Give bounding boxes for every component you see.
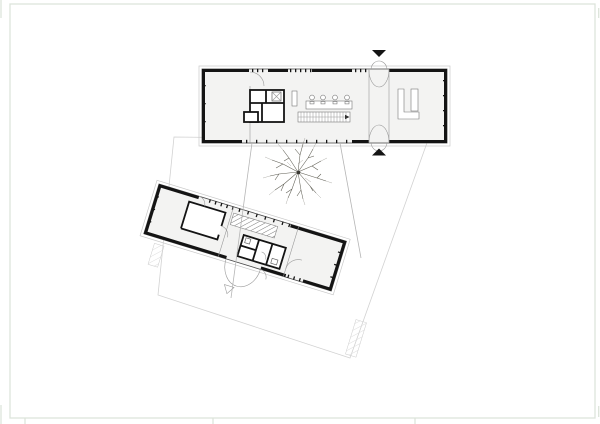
chair (333, 95, 338, 100)
drawing-sheet (0, 0, 600, 424)
chair (310, 95, 315, 100)
chair (345, 95, 350, 100)
floor-plan-canvas (0, 0, 600, 424)
counter (292, 91, 297, 106)
north-building (199, 50, 450, 156)
paper (0, 0, 600, 424)
core-annex (244, 112, 258, 122)
staircase-north (298, 112, 350, 122)
service-core (244, 90, 284, 122)
tree-trunk (297, 171, 301, 175)
chair (321, 95, 326, 100)
